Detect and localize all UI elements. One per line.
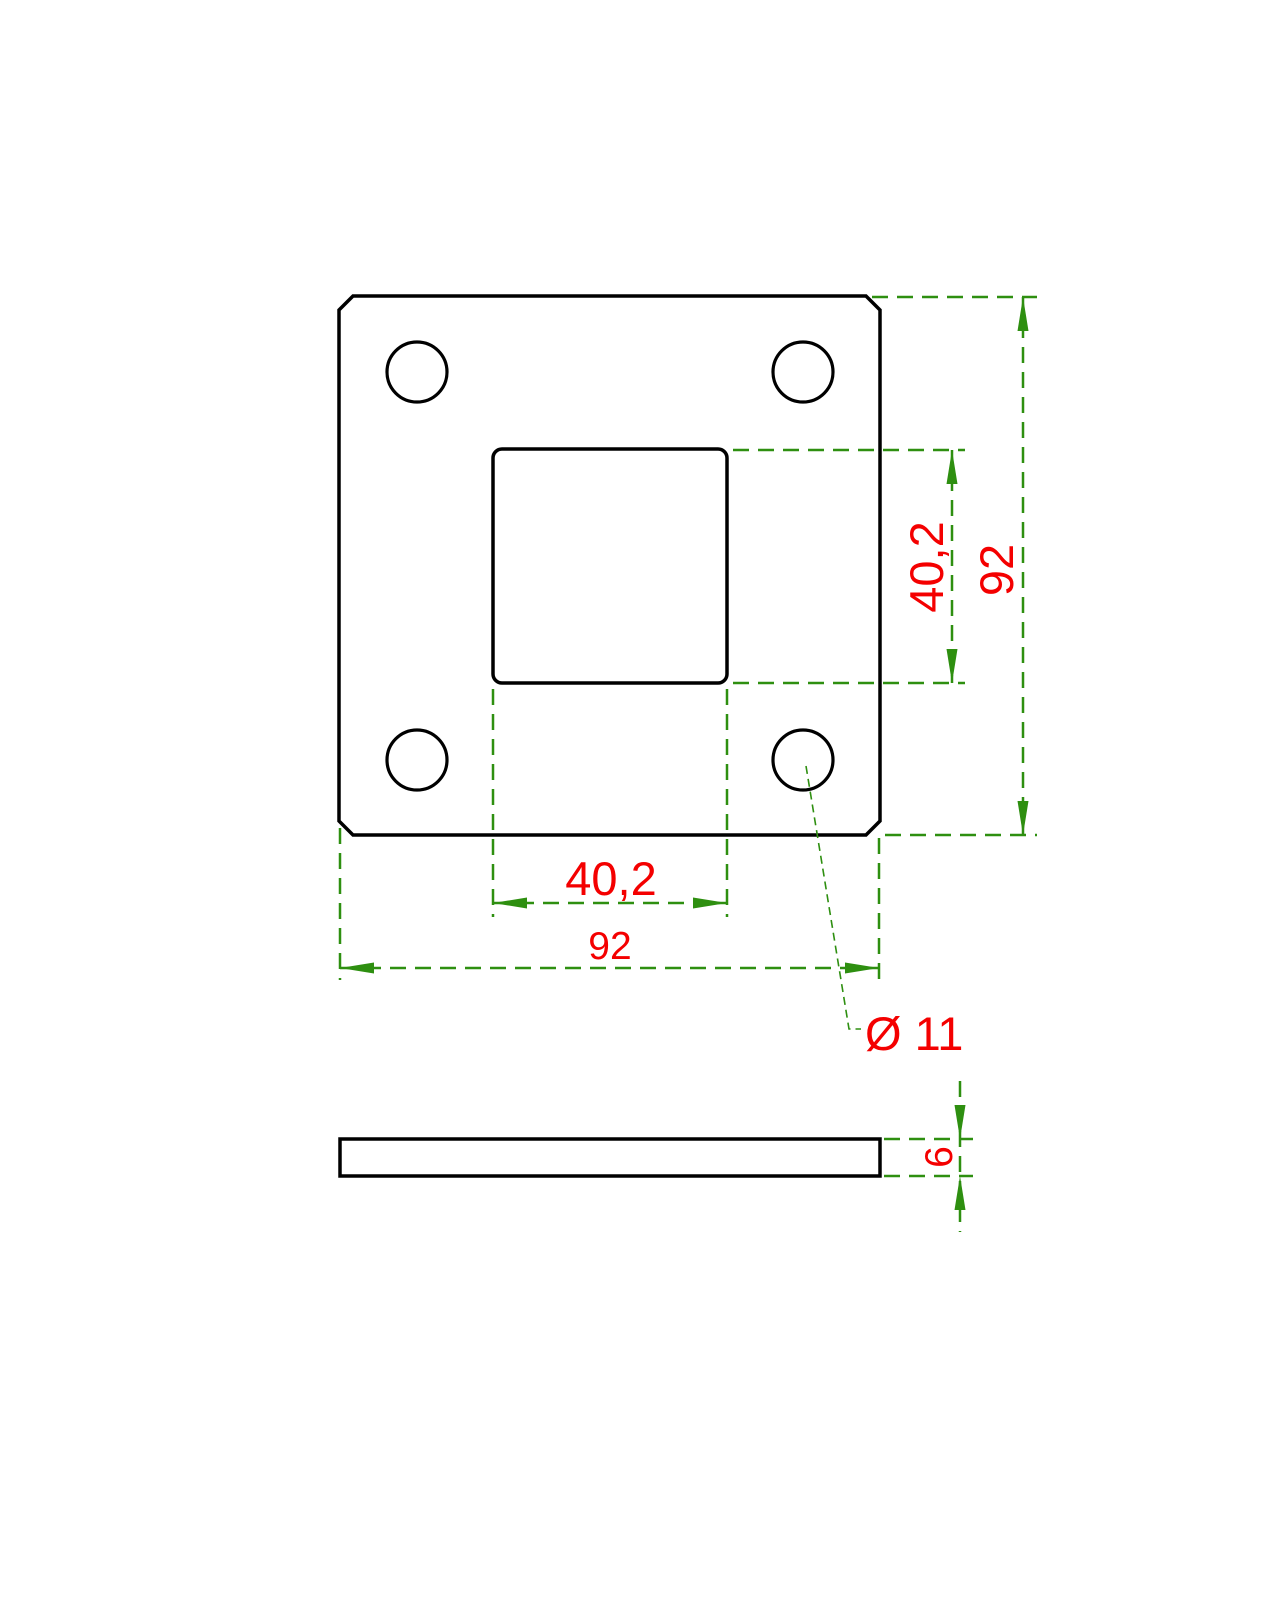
arrow-up-icon	[1018, 297, 1029, 331]
arrow-down-icon	[955, 1105, 966, 1139]
dim-label-inner-height: 40,2	[900, 521, 953, 612]
dim-label-inner-width: 40,2	[565, 852, 656, 905]
arrow-down-icon	[947, 649, 958, 683]
arrow-down-icon	[1018, 801, 1029, 835]
dim-label-outer-width: 92	[588, 925, 631, 968]
bolt-hole-bottom-left	[387, 730, 447, 790]
bolt-hole-bottom-right	[773, 730, 833, 790]
cad-drawing-canvas: 40,2 92 40,2 92 Ø 11	[0, 0, 1280, 1600]
dim-outer-height: 92	[872, 297, 1037, 835]
center-square-hole	[493, 449, 727, 683]
dim-label-thickness: 6	[918, 1146, 961, 1168]
arrow-up-icon	[955, 1176, 966, 1210]
plate-side-view	[340, 1139, 880, 1176]
bolt-hole-top-right	[773, 342, 833, 402]
bolt-hole-top-left	[387, 342, 447, 402]
dim-label-outer-height: 92	[970, 544, 1023, 596]
side-view-outline	[340, 1139, 880, 1176]
arrow-right-icon	[845, 963, 879, 974]
arrow-right-icon	[693, 898, 727, 909]
arrow-up-icon	[947, 450, 958, 484]
dim-label-hole-diameter: Ø 11	[865, 1007, 963, 1060]
dim-thickness: 6	[884, 1081, 973, 1232]
arrow-left-icon	[493, 898, 527, 909]
arrow-left-icon	[340, 963, 374, 974]
plate-front-view	[339, 296, 880, 835]
